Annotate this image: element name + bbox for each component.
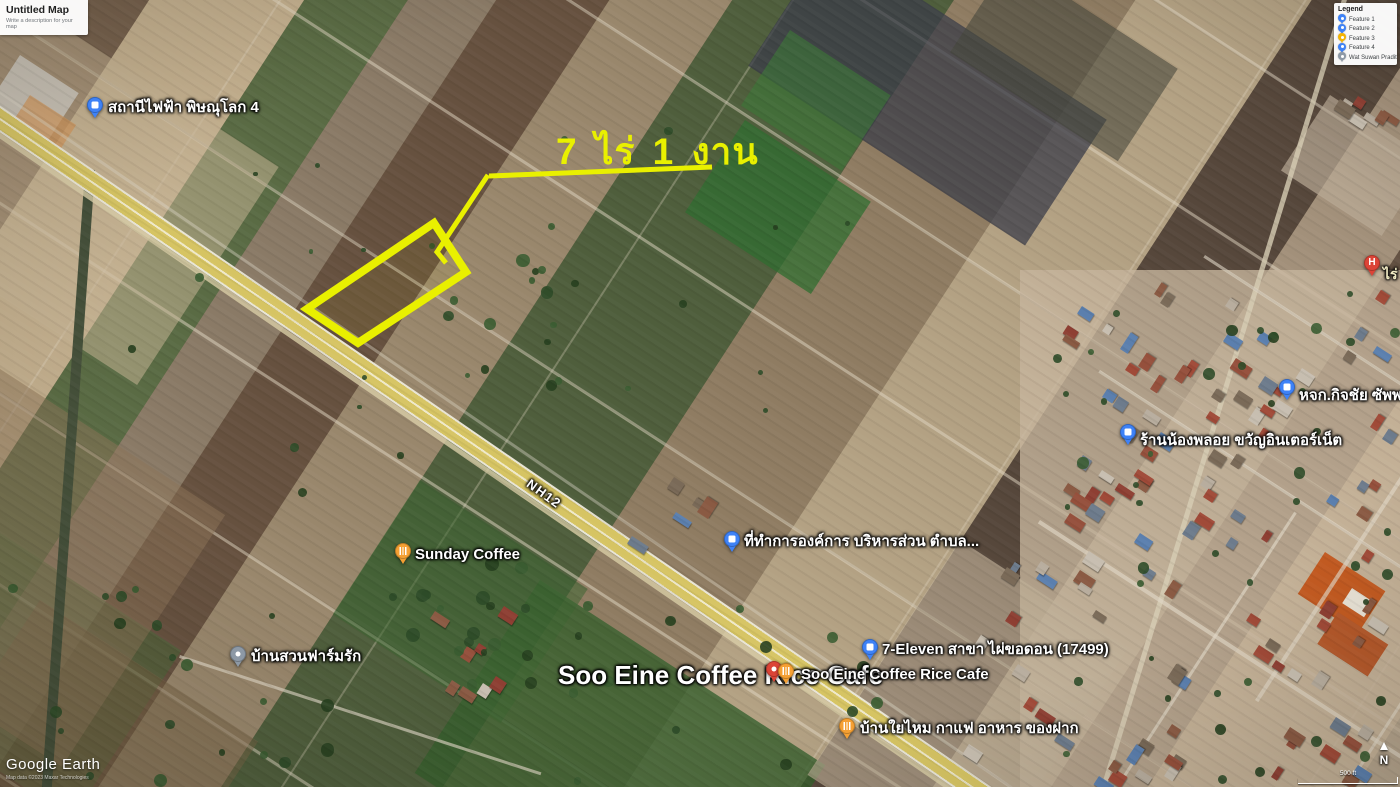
pin-glyph-dot	[236, 652, 241, 657]
place-pin-icon[interactable]: H	[1364, 255, 1380, 276]
pin-glyph-H: H	[1368, 258, 1375, 268]
legend-item[interactable]: Wat Suwan Pradit	[1338, 53, 1393, 63]
place-label: ที่ทำการองค์การ บริหารส่วน ตำบล...	[744, 533, 979, 550]
pin-glyph-bars	[400, 547, 407, 555]
place-pin-icon[interactable]	[230, 646, 246, 667]
pin-head	[1338, 33, 1346, 41]
area-annotation-label: 7 ไร่ 1 งาน	[556, 122, 759, 181]
compass[interactable]: N	[1376, 742, 1392, 769]
place-label: บ้านใยไหม กาแฟ อาหาร ของฝาก	[860, 720, 1079, 737]
place-label: หจก.กิจชัย ซัพพลาย	[1299, 387, 1400, 404]
place-pin-icon[interactable]	[724, 531, 740, 552]
legend-item-label: Feature 3	[1349, 36, 1375, 42]
attribution: Google Earth Map data ©2023 Maxar Techno…	[6, 756, 100, 781]
legend-item[interactable]: Feature 1	[1338, 15, 1393, 25]
legend-item[interactable]: Feature 3	[1338, 34, 1393, 44]
legend-item[interactable]: Feature 4	[1338, 44, 1393, 54]
place-label: ร้านน้องพลอย ขวัญอินเตอร์เน็ต	[1140, 432, 1342, 449]
pin-head	[1279, 379, 1295, 395]
place-pin-icon[interactable]	[1279, 379, 1295, 400]
pin-glyph-bars	[844, 722, 851, 730]
imagery-copyright: Map data ©2023 Maxar Technologies	[6, 775, 100, 781]
pin-head	[839, 718, 855, 734]
pin-glyph-sq	[729, 536, 736, 543]
pin-head	[1338, 24, 1346, 32]
compass-north-arrow-icon	[1380, 742, 1388, 750]
pin-glyph-dot	[772, 667, 777, 672]
pin-head	[87, 97, 103, 113]
legend-panel: Legend Feature 1Feature 2Feature 3Featur…	[1334, 3, 1397, 65]
legend-item-label: Wat Suwan Pradit	[1349, 55, 1397, 61]
place-label: สถานีไฟฟ้า พิษณุโลก 4	[108, 99, 259, 116]
place-label: Sunday Coffee	[415, 546, 520, 563]
place-label: Soo Eine Coffee Rice Cafe	[801, 666, 989, 683]
google-earth-logo: Google Earth	[6, 756, 100, 773]
compass-north-label: N	[1380, 753, 1389, 767]
pin-head	[724, 531, 740, 547]
legend-item-label: Feature 2	[1349, 26, 1375, 32]
google-earth-map-view[interactable]: 7 ไร่ 1 งาน สถานีไฟฟ้า พิษณุโลก 4Sunday …	[0, 0, 1400, 787]
pin-glyph-sq	[92, 102, 99, 109]
scale-value: 500 ft	[1298, 770, 1398, 777]
pin-head	[395, 543, 411, 559]
place-pin-icon[interactable]	[395, 543, 411, 564]
place-label: บ้านสวนฟาร์มรัก	[251, 648, 361, 665]
legend-item-label: Feature 1	[1349, 17, 1375, 23]
place-pin-icon[interactable]	[839, 718, 855, 739]
pin-head	[230, 646, 246, 662]
place-pin-icon[interactable]	[778, 663, 794, 684]
pin-head	[778, 663, 794, 679]
pin-glyph-sq	[867, 644, 874, 651]
legend-item-label: Feature 4	[1349, 45, 1375, 51]
pin-head	[1338, 43, 1346, 51]
scale-bar-line	[1298, 778, 1398, 784]
place-pin-icon[interactable]	[1120, 424, 1136, 445]
pin-glyph-sq	[1125, 429, 1132, 436]
place-pin-icon[interactable]	[87, 97, 103, 118]
pin-head: H	[1364, 255, 1380, 271]
pin-head	[1120, 424, 1136, 440]
pin-head	[1338, 52, 1346, 60]
pin-head	[1338, 14, 1346, 22]
map-title[interactable]: Untitled Map	[6, 4, 82, 16]
pin-glyph-bars	[783, 667, 790, 675]
legend-title: Legend	[1338, 6, 1393, 13]
map-description-placeholder[interactable]: Write a description for your map	[6, 18, 82, 30]
map-title-card[interactable]: Untitled Map Write a description for you…	[0, 0, 88, 35]
legend-items: Feature 1Feature 2Feature 3Feature 4Wat …	[1338, 15, 1393, 63]
legend-pin-icon	[1338, 52, 1346, 63]
pin-head	[862, 639, 878, 655]
scale-bar: 500 ft	[1298, 770, 1398, 784]
place-label: 7-Eleven สาขา ไผ่ขอดอน (17499)	[882, 641, 1109, 658]
place-label: ไร่	[1383, 266, 1398, 282]
pin-glyph-sq	[1284, 384, 1291, 391]
legend-item[interactable]: Feature 2	[1338, 25, 1393, 35]
place-pin-icon[interactable]	[862, 639, 878, 660]
